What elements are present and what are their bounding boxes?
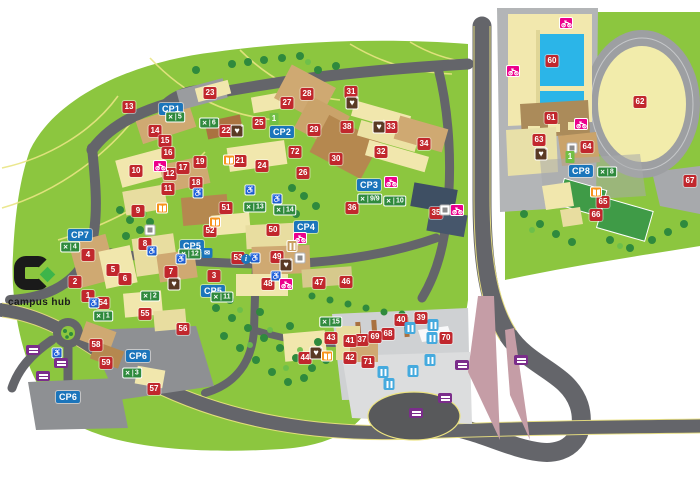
crossing-number: 8 bbox=[607, 169, 614, 176]
small-text-icon bbox=[39, 374, 48, 379]
building-marker-36[interactable]: 36 bbox=[346, 202, 359, 214]
small-text-icon bbox=[458, 363, 467, 368]
cyclist-icon bbox=[452, 206, 463, 215]
building-marker-15[interactable]: 15 bbox=[159, 135, 172, 147]
crossing-badge: ×14 bbox=[273, 205, 296, 216]
building-marker-58[interactable]: 58 bbox=[90, 339, 103, 351]
building-marker-19[interactable]: 19 bbox=[194, 156, 207, 168]
open-book-icon bbox=[226, 157, 233, 163]
carpark-label-cp3[interactable]: CP3 bbox=[357, 179, 381, 191]
purple-info-badge bbox=[26, 345, 40, 355]
library-badge bbox=[321, 351, 333, 362]
building-marker-56[interactable]: 56 bbox=[177, 323, 190, 335]
cyclist-icon bbox=[561, 19, 572, 28]
purple-info-badge bbox=[36, 371, 50, 381]
wheelchair-icon: ♿ bbox=[245, 186, 255, 194]
crossing-icon: × bbox=[360, 195, 365, 203]
building-marker-29[interactable]: 29 bbox=[308, 124, 321, 136]
carpark-label-cp7[interactable]: CP7 bbox=[68, 229, 92, 241]
crossing-badge: ×9/9 bbox=[357, 194, 382, 205]
cycle-route-badge bbox=[153, 160, 167, 172]
cyclist-icon bbox=[508, 67, 519, 76]
facility-badge bbox=[440, 205, 451, 216]
defibrillator-badge: ♥+ bbox=[535, 148, 548, 161]
route-badge: 1 bbox=[566, 151, 575, 163]
defibrillator-icon: ♥+ bbox=[538, 150, 543, 159]
building-marker-39[interactable]: 39 bbox=[415, 312, 428, 324]
building-marker-3[interactable]: 3 bbox=[208, 270, 221, 282]
cycle-route-badge bbox=[279, 278, 293, 290]
building-marker-63[interactable]: 63 bbox=[533, 134, 546, 146]
crossing-number: 5 bbox=[175, 114, 182, 121]
open-book-icon bbox=[324, 353, 331, 359]
crossing-badge: ×2 bbox=[140, 291, 160, 302]
carpark-label-cp6[interactable]: CP6 bbox=[126, 350, 150, 362]
crossing-number: 13 bbox=[253, 204, 264, 211]
building-marker-9[interactable]: 9 bbox=[132, 205, 145, 217]
open-book-icon bbox=[593, 189, 600, 195]
facility-badge bbox=[295, 253, 306, 264]
crossing-badge: ×10 bbox=[383, 196, 406, 207]
crossing-icon: × bbox=[125, 369, 130, 377]
building-marker-42[interactable]: 42 bbox=[344, 352, 357, 364]
crossing-badge: ×6 bbox=[199, 118, 219, 129]
small-text-icon bbox=[57, 361, 66, 366]
carpark-label-cp2[interactable]: CP2 bbox=[270, 126, 294, 138]
building-marker-61[interactable]: 61 bbox=[545, 112, 558, 124]
crossing-icon: × bbox=[168, 113, 173, 121]
wheelchair-icon: ♿ bbox=[147, 247, 157, 255]
crossing-icon: × bbox=[143, 292, 148, 300]
crossing-icon: × bbox=[63, 243, 68, 251]
small-text-icon bbox=[29, 348, 38, 353]
cyclist-icon bbox=[281, 280, 292, 289]
campus-hub-logo-text: campus hub bbox=[8, 297, 88, 308]
building-marker-68[interactable]: 68 bbox=[382, 328, 395, 340]
crossing-badge: ×11 bbox=[210, 292, 233, 303]
wheelchair-icon: ♿ bbox=[272, 195, 282, 203]
accessibility-badge: ♿ bbox=[176, 254, 187, 265]
cycle-route-badge bbox=[506, 65, 520, 77]
crossing-number: 4 bbox=[70, 244, 77, 251]
building-marker-70[interactable]: 70 bbox=[440, 332, 453, 344]
bus-stop-icon bbox=[429, 335, 435, 342]
building-marker-47[interactable]: 47 bbox=[313, 277, 326, 289]
marker-layer: 1234567891011121314151617181921222324252… bbox=[0, 0, 700, 477]
library-badge bbox=[590, 187, 602, 198]
crossing-number: 10 bbox=[393, 198, 404, 205]
defibrillator-icon: ♥+ bbox=[283, 261, 288, 270]
small-text-icon bbox=[412, 411, 421, 416]
library-badge bbox=[156, 203, 168, 214]
carpark-label-cp6[interactable]: CP6 bbox=[56, 391, 80, 403]
small-text-icon bbox=[441, 396, 450, 401]
post-badge: ✉ bbox=[202, 248, 213, 258]
accessibility-badge: ♿ bbox=[193, 188, 204, 199]
bus-stop-badge bbox=[405, 322, 416, 334]
crossing-number: 3 bbox=[132, 370, 139, 377]
library-badge bbox=[209, 217, 221, 228]
open-book-icon bbox=[159, 205, 166, 211]
building-marker-13[interactable]: 13 bbox=[123, 101, 136, 113]
cycle-route-badge bbox=[574, 118, 588, 130]
building-marker-21[interactable]: 21 bbox=[234, 155, 247, 167]
facility-badge bbox=[145, 225, 156, 236]
defibrillator-badge: ♥+ bbox=[373, 121, 386, 134]
building-marker-60[interactable]: 60 bbox=[546, 55, 559, 67]
crossing-badge: ×8 bbox=[597, 167, 617, 178]
building-marker-30[interactable]: 30 bbox=[330, 153, 343, 165]
building-marker-50[interactable]: 50 bbox=[267, 224, 280, 236]
bus-stop-icon bbox=[430, 322, 436, 329]
building-marker-43[interactable]: 43 bbox=[325, 332, 338, 344]
facility-icon bbox=[570, 146, 575, 151]
bus-stop-badge bbox=[384, 378, 395, 390]
facility-icon bbox=[443, 208, 448, 213]
defibrillator-badge: ♥+ bbox=[231, 125, 244, 138]
bus-stop-badge bbox=[427, 332, 438, 344]
purple-info-badge bbox=[455, 360, 469, 370]
building-marker-57[interactable]: 57 bbox=[148, 383, 161, 395]
crossing-number: 11 bbox=[220, 294, 230, 301]
accessibility-badge: ♿ bbox=[245, 185, 256, 196]
crossing-number: 6 bbox=[209, 120, 216, 127]
campus-hub-logo: campus hub bbox=[8, 256, 88, 308]
building-marker-46[interactable]: 46 bbox=[340, 276, 353, 288]
bus-stop-icon bbox=[427, 357, 433, 364]
building-marker-67[interactable]: 67 bbox=[684, 175, 697, 187]
campus-hub-logo-mark bbox=[14, 256, 58, 294]
building-marker-32[interactable]: 32 bbox=[375, 146, 388, 158]
accessibility-badge: ♿ bbox=[89, 298, 100, 309]
route-badge: 1 bbox=[270, 113, 279, 125]
defibrillator-icon: ♥+ bbox=[171, 280, 176, 289]
wheelchair-icon: ♿ bbox=[193, 189, 203, 197]
bus-stop-badge bbox=[408, 365, 419, 377]
defibrillator-badge: ♥+ bbox=[168, 278, 181, 291]
library-badge bbox=[223, 155, 235, 166]
building-marker-25[interactable]: 25 bbox=[253, 117, 266, 129]
crossing-number: 2 bbox=[150, 293, 157, 300]
bus-stop-icon bbox=[380, 369, 386, 376]
defibrillator-icon: ♥+ bbox=[349, 99, 354, 108]
crossing-badge: ×1 bbox=[93, 311, 113, 322]
crossing-number: 15 bbox=[329, 319, 340, 326]
purple-info-badge bbox=[438, 393, 452, 403]
building-marker-26[interactable]: 26 bbox=[297, 167, 310, 179]
crossing-icon: × bbox=[600, 168, 605, 176]
building-marker-6[interactable]: 6 bbox=[119, 273, 132, 285]
bus-stop-icon bbox=[407, 325, 413, 332]
defibrillator-icon: ♥+ bbox=[313, 349, 318, 358]
building-marker-38[interactable]: 38 bbox=[341, 121, 354, 133]
crossing-icon: × bbox=[202, 119, 207, 127]
bus-stop-badge bbox=[425, 354, 436, 366]
building-marker-69[interactable]: 69 bbox=[369, 331, 382, 343]
crossing-number: 12 bbox=[188, 251, 199, 258]
crossing-badge: ×4 bbox=[60, 242, 80, 253]
building-marker-11[interactable]: 11 bbox=[162, 183, 175, 195]
crossing-icon: × bbox=[246, 203, 251, 211]
building-marker-10[interactable]: 10 bbox=[130, 165, 143, 177]
wheelchair-icon: ♿ bbox=[250, 254, 260, 262]
building-marker-71[interactable]: 71 bbox=[362, 356, 375, 368]
crossing-icon: × bbox=[386, 197, 391, 205]
bus-stop-badge bbox=[378, 366, 389, 378]
building-marker-34[interactable]: 34 bbox=[418, 138, 431, 150]
building-marker-64[interactable]: 64 bbox=[581, 141, 594, 153]
wheelchair-icon: ♿ bbox=[52, 349, 62, 357]
facility-icon bbox=[298, 256, 303, 261]
crossing-badge: ×3 bbox=[122, 368, 142, 379]
building-marker-51[interactable]: 51 bbox=[220, 202, 233, 214]
building-marker-41[interactable]: 41 bbox=[344, 335, 357, 347]
wheelchair-icon: ♿ bbox=[89, 299, 99, 307]
envelope-icon: ✉ bbox=[204, 250, 210, 257]
crossing-icon: × bbox=[276, 206, 281, 214]
accessibility-badge: ♿ bbox=[147, 246, 158, 257]
crossing-icon: × bbox=[213, 293, 218, 301]
building-marker-72[interactable]: 72 bbox=[289, 146, 302, 158]
building-marker-33[interactable]: 33 bbox=[385, 121, 398, 133]
crossing-badge: ×15 bbox=[319, 317, 342, 328]
building-marker-7[interactable]: 7 bbox=[165, 266, 178, 278]
building-marker-37[interactable]: 37 bbox=[356, 334, 369, 346]
defibrillator-badge: ♥+ bbox=[280, 259, 293, 272]
purple-info-badge bbox=[54, 358, 68, 368]
cyclist-icon bbox=[576, 120, 587, 129]
building-marker-65[interactable]: 65 bbox=[597, 196, 610, 208]
cyclist-icon bbox=[155, 162, 166, 171]
shelter-badge bbox=[287, 240, 298, 252]
defibrillator-icon: ♥+ bbox=[376, 123, 381, 132]
defibrillator-icon: ♥+ bbox=[234, 127, 239, 136]
building-marker-16[interactable]: 16 bbox=[162, 147, 175, 159]
building-marker-17[interactable]: 17 bbox=[177, 162, 190, 174]
cycle-route-badge bbox=[450, 204, 464, 216]
building-marker-23[interactable]: 23 bbox=[204, 87, 217, 99]
open-book-icon bbox=[212, 219, 219, 225]
facility-icon bbox=[148, 228, 153, 233]
purple-info-badge bbox=[409, 408, 423, 418]
campus-map: campus hub 12345678910111213141516171819… bbox=[0, 0, 700, 477]
crossing-badge: ×13 bbox=[243, 202, 266, 213]
cycle-route-badge bbox=[559, 17, 573, 29]
building-marker-66[interactable]: 66 bbox=[590, 209, 603, 221]
cyclist-icon bbox=[386, 178, 397, 187]
bus-stop-icon bbox=[410, 368, 416, 375]
accessibility-badge: ♿ bbox=[52, 348, 63, 359]
building-marker-62[interactable]: 62 bbox=[634, 96, 647, 108]
crossing-number: 1 bbox=[103, 313, 110, 320]
accessibility-badge: ♿ bbox=[272, 194, 283, 205]
carpark-label-cp8[interactable]: CP8 bbox=[569, 165, 593, 177]
accessibility-badge: ♿ bbox=[250, 253, 261, 264]
building-marker-55[interactable]: 55 bbox=[139, 308, 152, 320]
crossing-icon: × bbox=[96, 312, 101, 320]
bus-stop-icon bbox=[386, 381, 392, 388]
building-marker-24[interactable]: 24 bbox=[256, 160, 269, 172]
defibrillator-badge: ♥+ bbox=[346, 97, 359, 110]
wheelchair-icon: ♿ bbox=[176, 255, 186, 263]
shelter-icon bbox=[289, 243, 295, 250]
building-marker-59[interactable]: 59 bbox=[100, 357, 113, 369]
crossing-badge: ×5 bbox=[165, 112, 185, 123]
building-marker-27[interactable]: 27 bbox=[281, 97, 294, 109]
small-text-icon bbox=[517, 358, 526, 363]
cycle-route-badge bbox=[384, 176, 398, 188]
crossing-number: 14 bbox=[283, 207, 294, 214]
purple-info-badge bbox=[514, 355, 528, 365]
building-marker-28[interactable]: 28 bbox=[301, 88, 314, 100]
crossing-icon: × bbox=[322, 318, 327, 326]
bus-stop-badge bbox=[428, 319, 439, 331]
crossing-number: 9/9 bbox=[367, 196, 380, 203]
information-badge: i bbox=[241, 254, 251, 264]
